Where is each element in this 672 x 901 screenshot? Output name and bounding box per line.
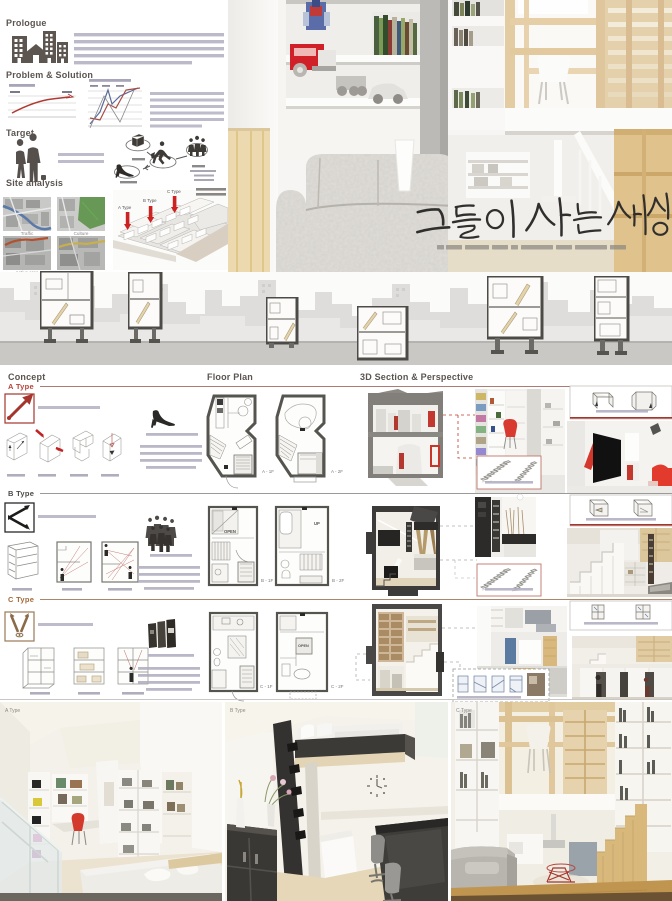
svg-text:Culture: Culture bbox=[74, 231, 89, 236]
svg-text:B - 1F: B - 1F bbox=[261, 578, 274, 583]
svg-text:B Type: B Type bbox=[230, 708, 246, 714]
svg-text:B - 2F: B - 2F bbox=[332, 578, 345, 583]
svg-text:C - 1F: C - 1F bbox=[260, 684, 273, 689]
svg-text:OPEN: OPEN bbox=[224, 529, 236, 534]
svg-text:A - 1F: A - 1F bbox=[262, 469, 274, 474]
svg-text:C Type: C Type bbox=[167, 189, 181, 194]
svg-text:A Type: A Type bbox=[118, 205, 132, 210]
svg-text:B Type: B Type bbox=[143, 198, 157, 203]
svg-text:A Type: A Type bbox=[5, 708, 20, 714]
svg-text:C Type: C Type bbox=[456, 708, 472, 714]
svg-text:OPEN: OPEN bbox=[298, 644, 309, 648]
svg-text:A - 2F: A - 2F bbox=[331, 469, 343, 474]
svg-text:C - 2F: C - 2F bbox=[331, 684, 344, 689]
svg-text:Traffic: Traffic bbox=[21, 231, 34, 236]
svg-text:UP: UP bbox=[314, 521, 320, 526]
